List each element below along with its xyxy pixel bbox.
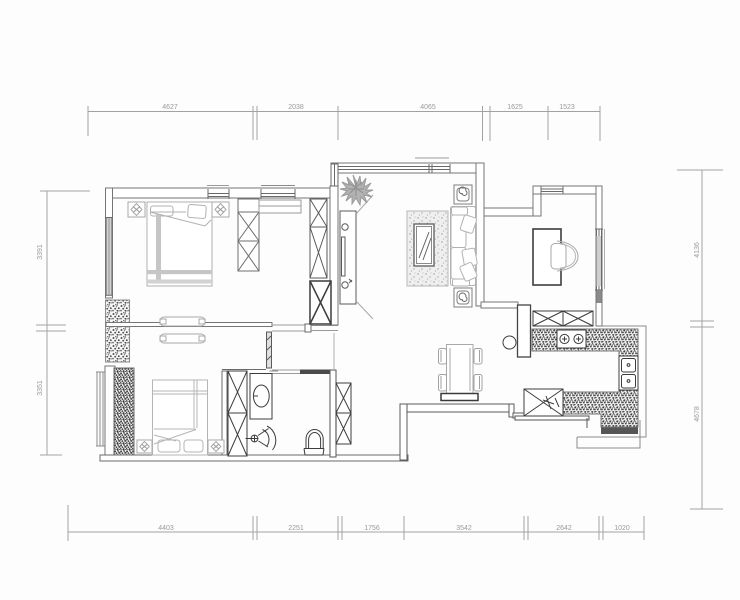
svg-text:4136: 4136: [694, 242, 701, 258]
svg-text:1020: 1020: [614, 525, 630, 532]
svg-text:4678: 4678: [694, 406, 701, 422]
svg-text:3542: 3542: [456, 525, 472, 532]
svg-text:3351: 3351: [37, 380, 44, 396]
svg-text:2642: 2642: [556, 525, 572, 532]
svg-text:3391: 3391: [37, 244, 44, 260]
svg-text:2038: 2038: [288, 104, 304, 111]
svg-text:4065: 4065: [420, 104, 436, 111]
svg-text:1523: 1523: [559, 104, 575, 111]
svg-text:1756: 1756: [364, 525, 380, 532]
svg-text:4403: 4403: [158, 525, 174, 532]
svg-text:1625: 1625: [507, 104, 523, 111]
svg-text:2251: 2251: [288, 525, 304, 532]
svg-text:4627: 4627: [162, 104, 178, 111]
